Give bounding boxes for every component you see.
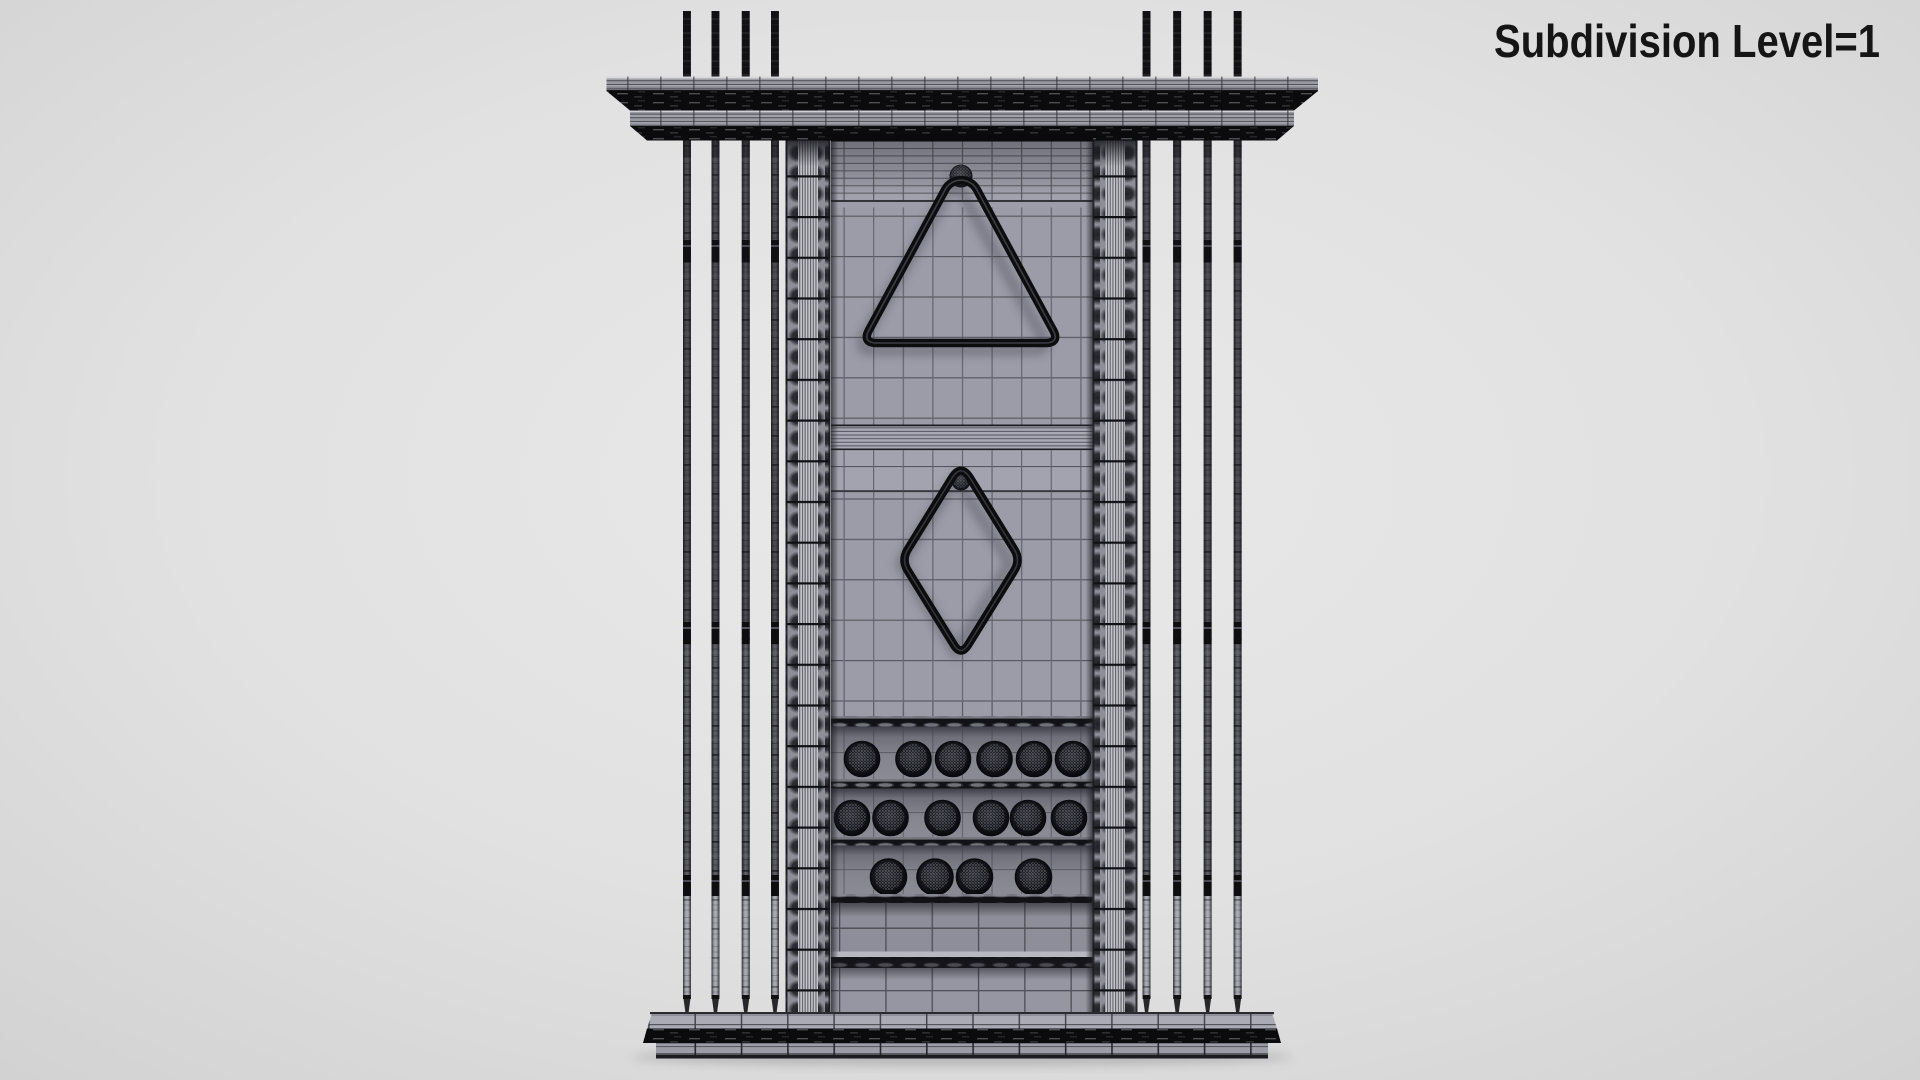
svg-text:Subdivision Level=1: Subdivision Level=1 [1494,15,1880,67]
